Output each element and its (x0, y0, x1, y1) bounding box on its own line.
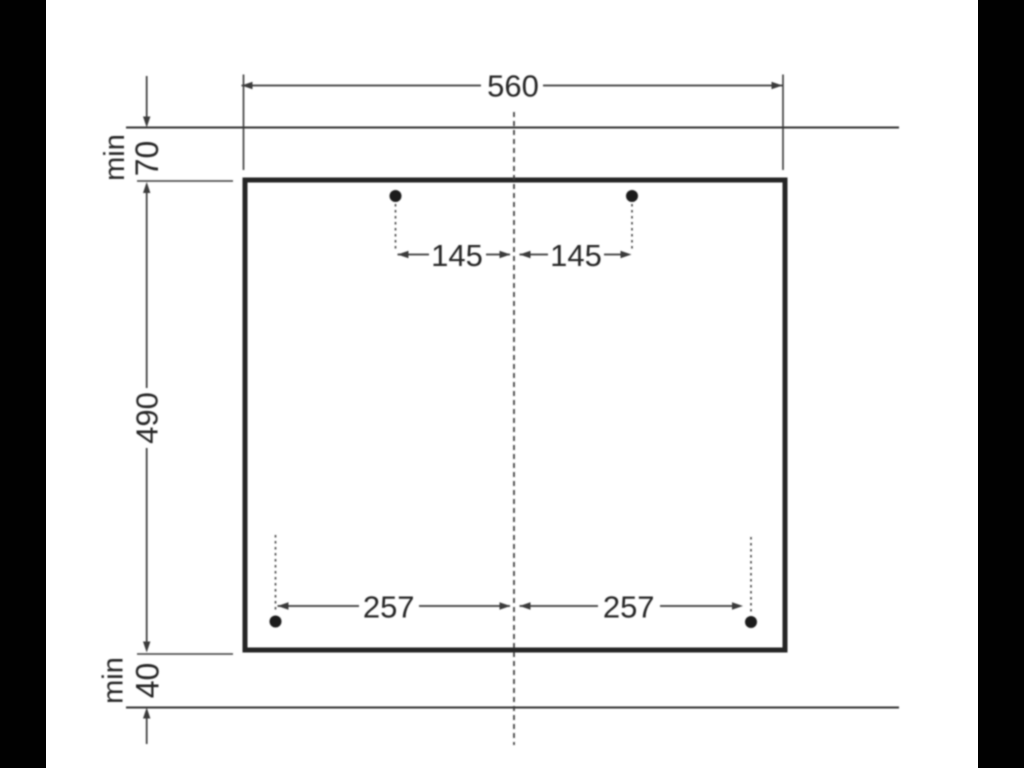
svg-text:257: 257 (363, 590, 415, 625)
svg-text:490: 490 (130, 392, 165, 444)
svg-text:145: 145 (431, 238, 483, 273)
svg-text:40: 40 (130, 663, 166, 699)
svg-text:min: min (98, 657, 130, 704)
svg-text:70: 70 (129, 141, 165, 177)
svg-text:145: 145 (550, 238, 602, 273)
svg-text:257: 257 (603, 590, 655, 625)
svg-text:560: 560 (487, 69, 539, 104)
svg-text:min: min (99, 134, 131, 181)
